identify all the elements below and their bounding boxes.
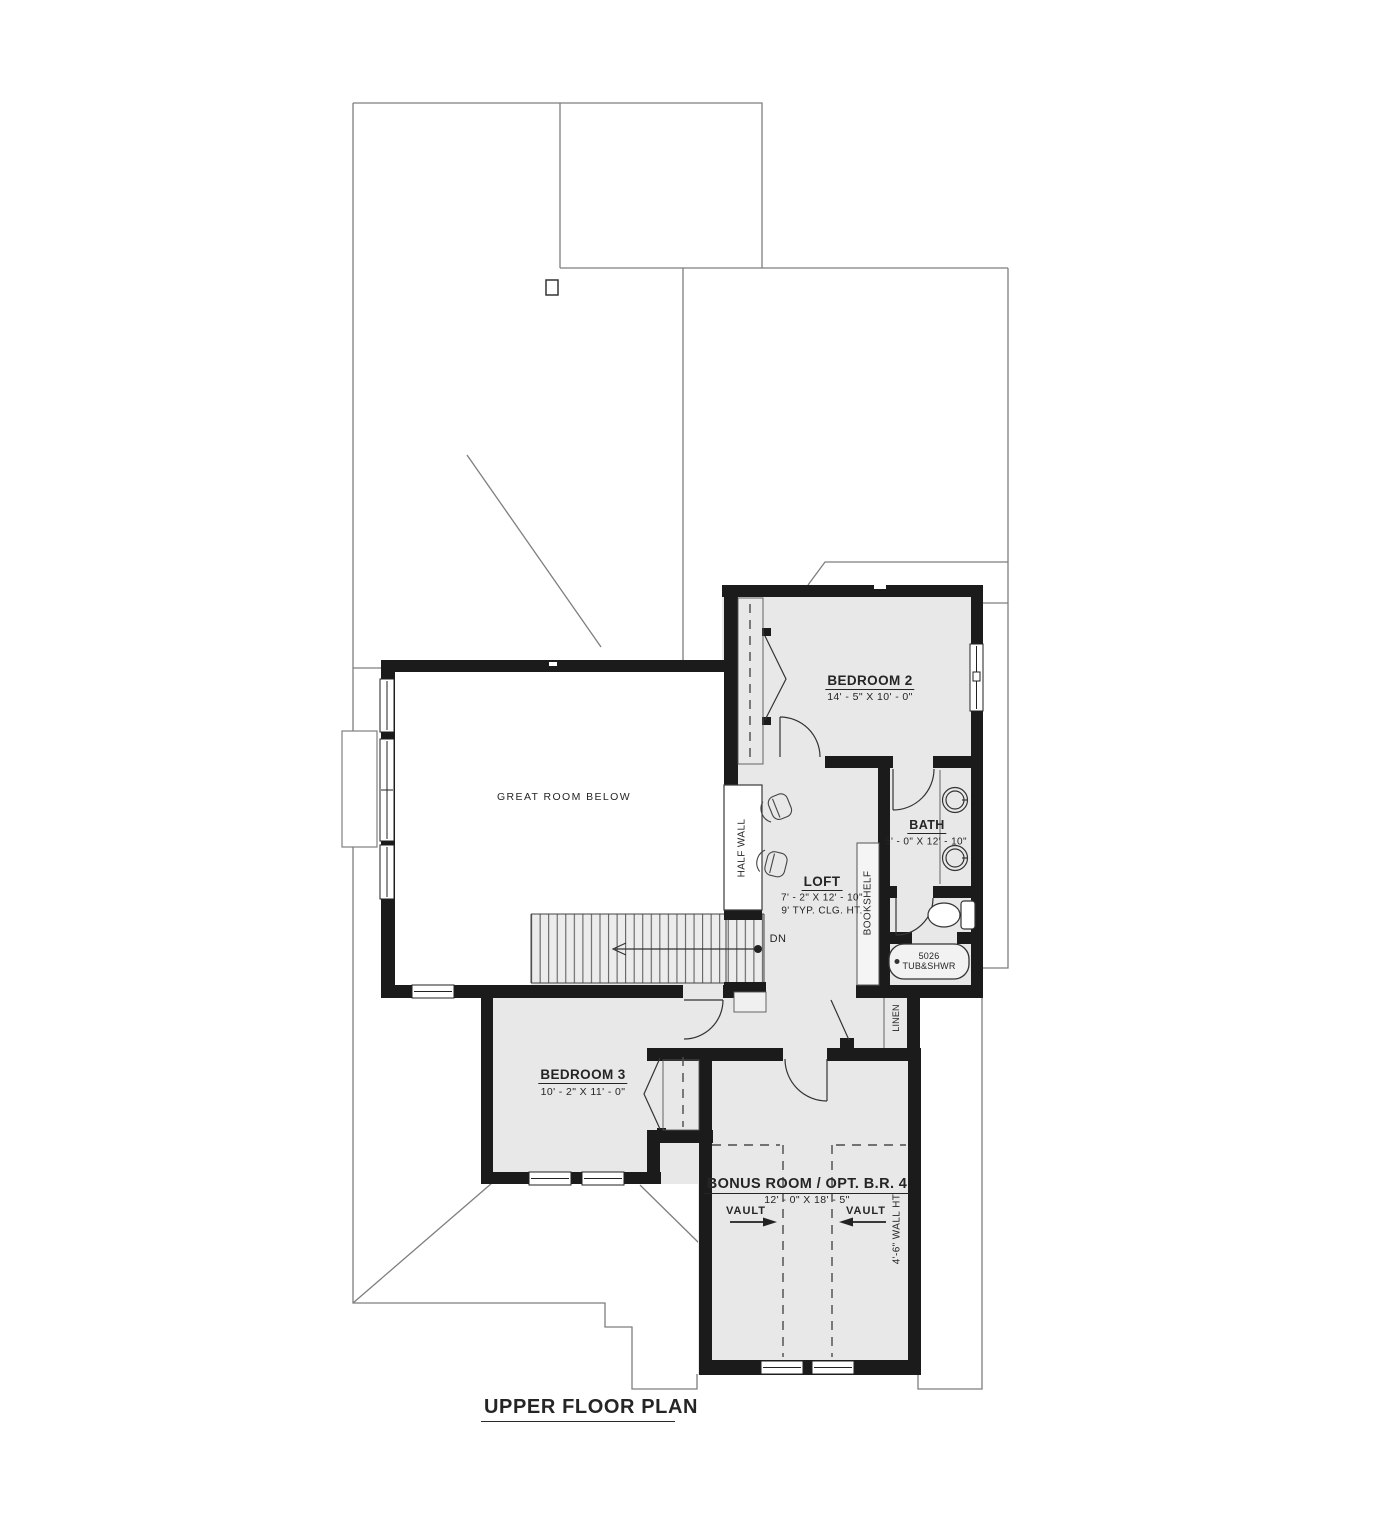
bookshelf-label: BOOKSHELF — [863, 871, 874, 936]
bedroom2-bottom-wall-west — [825, 756, 893, 768]
bonus-right-wall — [908, 1048, 921, 1375]
vault-label-left: VAULT — [726, 1205, 766, 1217]
bath-label: BATH — [907, 818, 946, 834]
bedroom2-dims: 14' - 5" X 10' - 0" — [827, 691, 913, 703]
bedroom3-floor — [481, 985, 713, 1184]
wall-break-tick — [874, 585, 886, 589]
bedroom2-top-wall — [722, 585, 983, 597]
fireplace-bumpout — [342, 731, 377, 847]
window — [380, 679, 394, 732]
attic-access-square — [546, 280, 558, 295]
window — [761, 1361, 803, 1374]
window — [582, 1172, 624, 1185]
window — [380, 845, 394, 899]
loft-dims: 7' - 2" X 12' - 10" — [781, 893, 863, 904]
linen-right-wall — [907, 997, 920, 1048]
loft-label: LOFT — [802, 874, 843, 891]
linen-label: LINEN — [891, 1004, 901, 1032]
stair-arrow-start-dot — [754, 945, 762, 953]
vault-label-right: VAULT — [846, 1205, 886, 1217]
great-room-top-wall — [381, 660, 737, 672]
bedroom2-bottom-wall-east — [933, 756, 971, 768]
loft-ceiling-note: 9' TYP. CLG. HT. — [781, 906, 862, 917]
toilet — [928, 901, 975, 929]
bonus-room-label: BONUS ROOM / OPT. B.R. 4 — [705, 1176, 910, 1194]
bonus-left-wall — [699, 1048, 712, 1375]
bonus-top-wall-west — [647, 1048, 783, 1061]
bedroom3-dims: 10' - 2" X 11' - 0" — [541, 1086, 626, 1098]
tub-faucet — [895, 959, 900, 964]
bonus-room-dims: 12' - 0" X 18' - 5" — [764, 1194, 850, 1206]
window — [412, 985, 454, 998]
tub-type-label: TUB&SHWR — [902, 961, 955, 971]
plan-title: UPPER FLOOR PLAN — [484, 1396, 698, 1419]
bath-left-wall — [878, 768, 890, 985]
bedroom3-left-wall — [481, 985, 493, 1184]
bedroom3-label: BEDROOM 3 — [538, 1067, 627, 1084]
tub-model-label: 5026 — [919, 951, 940, 961]
bath-bottom-wall — [856, 985, 983, 998]
floor-plan-page: GREAT ROOM BELOW BEDROOM 2 14' - 5" X 10… — [0, 0, 1392, 1536]
stair-landing-opening — [734, 992, 766, 1012]
great-room-label: GREAT ROOM BELOW — [497, 791, 631, 803]
plan-title-underline — [481, 1421, 675, 1422]
window — [529, 1172, 571, 1185]
bedroom2-left-wall — [724, 585, 738, 785]
bath-dims: 5' - 0" X 12' - 10" — [885, 837, 967, 848]
window — [380, 739, 394, 841]
wall-height-note: 4'-6" WALL HT. — [892, 1192, 903, 1265]
bonus-bottom-wall — [699, 1360, 921, 1375]
staircase — [531, 914, 764, 983]
half-wall-label: HALF WALL — [737, 819, 748, 878]
floor-plan-drawing — [0, 0, 1392, 1536]
bedroom2-label: BEDROOM 2 — [825, 673, 914, 690]
window — [970, 644, 983, 711]
stair-down-label: DN — [770, 933, 787, 945]
window — [812, 1361, 854, 1374]
stair-rail-wall — [724, 982, 766, 992]
wall-break-tick — [549, 662, 557, 666]
